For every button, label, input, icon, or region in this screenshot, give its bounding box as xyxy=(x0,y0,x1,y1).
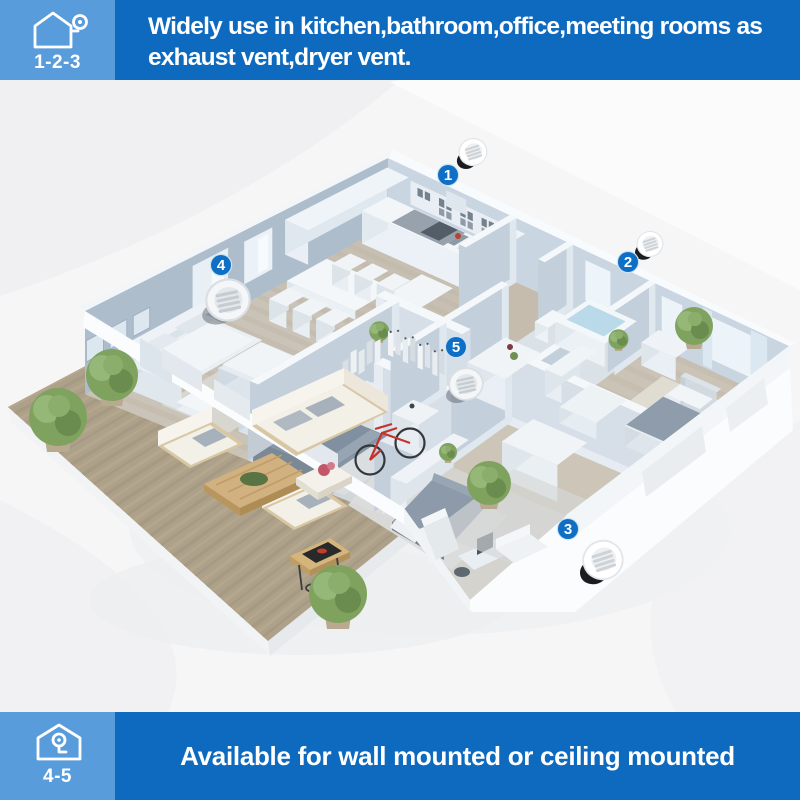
svg-text:3: 3 xyxy=(564,521,572,538)
svg-text:5: 5 xyxy=(452,339,460,356)
svg-text:1: 1 xyxy=(444,167,452,184)
svg-text:2: 2 xyxy=(624,254,632,271)
svg-text:4: 4 xyxy=(217,257,226,274)
